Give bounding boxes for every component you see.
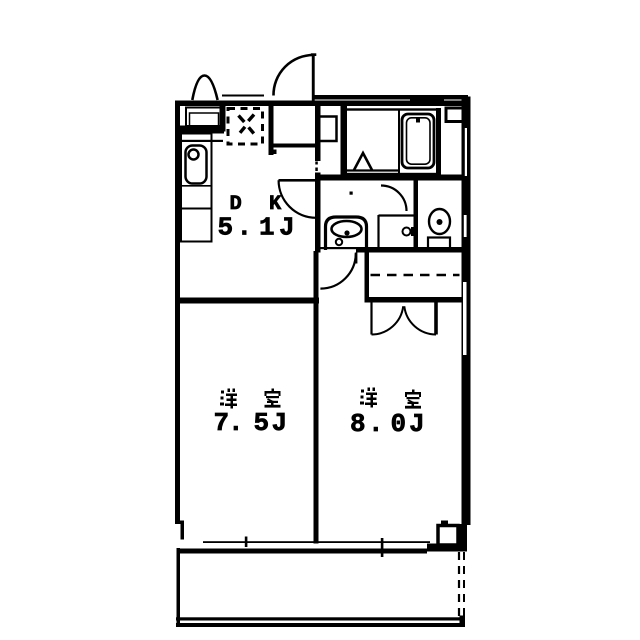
svg-text:J: J <box>279 213 295 243</box>
svg-text:8: 8 <box>350 409 366 439</box>
svg-text:0: 0 <box>391 409 407 439</box>
svg-text:.: . <box>237 213 253 243</box>
svg-text:5: 5 <box>254 408 270 438</box>
svg-text:J: J <box>409 409 425 439</box>
svg-text:1: 1 <box>259 213 275 243</box>
svg-text:J: J <box>272 408 288 438</box>
svg-text:.: . <box>368 409 384 439</box>
svg-text:.: . <box>228 408 244 438</box>
svg-text:5: 5 <box>218 213 234 243</box>
svg-text:7: 7 <box>214 408 230 438</box>
